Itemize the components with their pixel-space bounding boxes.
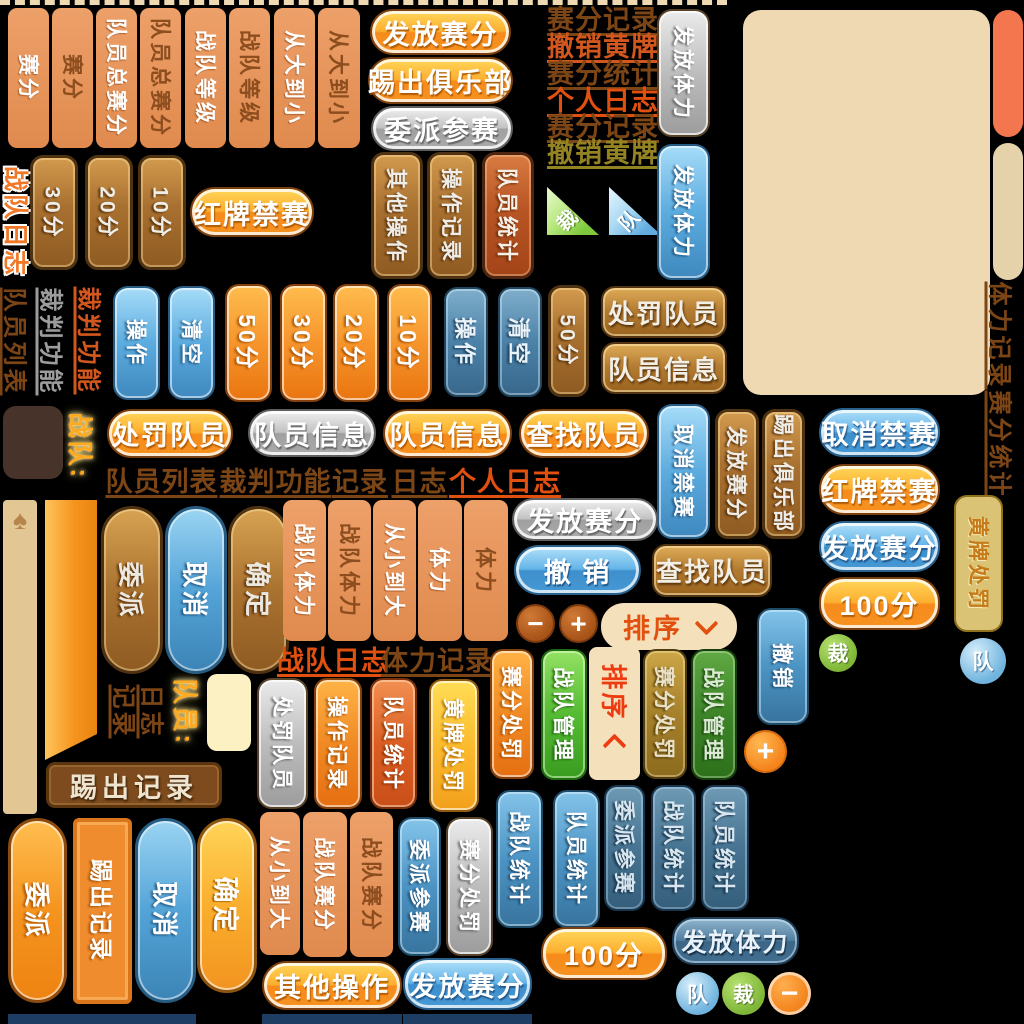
clear-button-steel[interactable]: 清空: [498, 287, 542, 397]
tab-team-stamina-brown-label: 战队体力: [335, 523, 365, 619]
confirm-button-pill-label: 确定: [240, 561, 277, 619]
team-log-link[interactable]: 战队日志: [282, 644, 384, 672]
10-points-button[interactable]: 10分: [138, 155, 186, 270]
score-penalty-button-gold[interactable]: 赛分处罚: [643, 649, 687, 779]
minus-button[interactable]: −: [516, 604, 555, 643]
action-button-blue[interactable]: 操作: [113, 286, 160, 400]
tab-team-stamina-white-label: 战队体力: [290, 523, 320, 619]
grant-stamina-button-blue[interactable]: 发放体力: [657, 144, 710, 280]
cancel-button-bottom[interactable]: 取消: [135, 818, 196, 1003]
team-log-label: 战队日志: [0, 158, 34, 286]
team-badge[interactable]: 队: [960, 638, 1006, 684]
tab-score-white-label: 赛分: [14, 54, 44, 102]
action-record-button[interactable]: 操作记录: [427, 152, 477, 279]
member-info-button-bronze-label: 队员信息: [608, 350, 720, 387]
referee-corner-flag[interactable]: 裁: [547, 187, 599, 235]
score-penalty-button[interactable]: 赛分处罚: [490, 649, 534, 779]
grant-score-button-blue[interactable]: 发放赛分: [819, 521, 940, 572]
sort-button-label: 排序: [623, 607, 683, 646]
kick-record-button-vertical-label: 踢出记录: [86, 859, 120, 963]
30-points-button[interactable]: 30分: [30, 155, 78, 270]
chevron-down-icon: [694, 611, 718, 635]
grant-score-button-gray[interactable]: 发放赛分: [512, 498, 658, 541]
punish-member-button[interactable]: 处罚队员: [107, 409, 233, 458]
10-points-button-orange-label: 10分: [393, 314, 427, 372]
referee-badge[interactable]: 裁: [819, 634, 857, 672]
log-link-label: 日志: [392, 460, 448, 499]
records-vlink[interactable]: 记录: [112, 680, 139, 742]
referee-functions-vlink-orange-label: 裁判功能: [74, 286, 109, 394]
member-info-button-gray[interactable]: 队员信息: [248, 409, 376, 457]
member-list-link-label: 队员列表: [106, 460, 218, 499]
30-points-button-label: 30分: [39, 186, 69, 239]
action-record-button-label: 操作记录: [437, 168, 467, 264]
clear-button-blue[interactable]: 清空: [168, 286, 215, 400]
50-points-button-orange[interactable]: 50分: [225, 284, 272, 402]
plus-button-label: +: [570, 608, 586, 640]
team-stats-button-vblue-label: 战队统计: [505, 811, 535, 907]
grant-stamina-button-gray-label: 发放体力: [669, 25, 699, 121]
cancel-ban-button-vertical-label: 取消禁赛: [669, 424, 699, 520]
team-stats-button-vdark-label: 战队统计: [659, 800, 689, 896]
20-points-button-orange-label: 20分: [339, 314, 373, 372]
plus-button-orange[interactable]: +: [744, 730, 787, 773]
find-member-button-label: 查找队员: [526, 414, 642, 453]
stamina-record-vlink-label: 体力记录: [985, 281, 1020, 389]
orange-ribbon: [45, 500, 97, 760]
team-management-button[interactable]: 战队管理: [541, 649, 587, 780]
tab-desc-order-white-label: 从大到小: [280, 30, 310, 126]
tan-strip: ♠: [3, 500, 37, 814]
grant-score-button-vertical-label: 发放赛分: [722, 426, 752, 522]
personal-log-link-2-label: 个人日志: [449, 460, 561, 499]
yellow-card-penalty-button-tan-label: 黄牌处罚: [964, 516, 994, 612]
sort-button-vertical-label: 排序: [596, 663, 633, 721]
member-stats-button-bronze-label: 队员统计: [493, 168, 523, 264]
referee-badge-2[interactable]: 裁: [722, 972, 765, 1015]
other-actions-button-2-label: 其他操作: [274, 966, 390, 1005]
tab-member-total-score-brown[interactable]: 队员总赛分: [140, 8, 181, 148]
punish-member-button-label: 处罚队员: [112, 414, 228, 453]
kick-record-button[interactable]: 踢出记录: [46, 762, 222, 808]
member-stats-button-vorange-label: 队员统计: [379, 696, 409, 792]
team-corner-flag-label: 队: [611, 202, 646, 237]
team-label: 战队:: [64, 406, 100, 486]
kick-club-button-label: 踢出俱乐部: [368, 61, 513, 100]
plus-button-orange-label: +: [757, 735, 775, 769]
referee-functions-vlink-gray[interactable]: 裁判功能: [35, 280, 71, 402]
kick-record-button-label: 踢出记录: [70, 766, 198, 805]
revoke-yellow-card-link-2-label: 撤销黄牌: [547, 131, 659, 170]
member-label-label: 队员:: [169, 678, 205, 745]
member-label: 队员:: [171, 675, 203, 749]
grant-stamina-button-blue-label: 发放体力: [669, 164, 699, 260]
assign-button-bottom[interactable]: 委派: [8, 818, 67, 1003]
tab-asc-order-white-2[interactable]: 从小到大: [260, 812, 300, 955]
team-log-link-label: 战队日志: [277, 639, 389, 678]
beige-side-pill: [993, 143, 1023, 280]
tab-desc-order-white[interactable]: 从大到小: [274, 8, 315, 148]
red-card-ban-button-2-label: 红牌禁赛: [822, 470, 938, 509]
member-info-button-gray-label: 队员信息: [254, 414, 370, 453]
revoke-yellow-card-link-2[interactable]: 撤销黄牌: [545, 137, 661, 163]
assign-match-button-label: 委派参赛: [384, 109, 500, 148]
cream-pill: [207, 674, 251, 751]
tab-desc-order-brown-label: 从大到小: [324, 30, 354, 126]
log-vlink-label: 日志: [136, 684, 171, 738]
referee-functions-link-label: 裁判功能: [220, 460, 332, 499]
red-card-ban-button-label: 红牌禁赛: [194, 193, 310, 232]
team-corner-flag[interactable]: 队: [609, 187, 661, 235]
tab-member-total-score-brown-label: 队员总赛分: [146, 18, 176, 138]
100-points-button-label: 100分: [839, 584, 919, 623]
referee-functions-vlink-gray-label: 裁判功能: [36, 287, 71, 395]
member-stats-button-vdark[interactable]: 队员统计: [701, 785, 749, 911]
cancel-ban-button-label: 取消禁赛: [822, 413, 938, 452]
red-card-ban-button-2[interactable]: 红牌禁赛: [819, 464, 940, 515]
action-button-blue-label: 操作: [122, 319, 152, 367]
sort-button-vertical[interactable]: 排序: [589, 647, 640, 780]
30-points-button-orange-label: 30分: [287, 314, 321, 372]
punish-member-button-bronze[interactable]: 处罚队员: [601, 286, 727, 338]
50-points-button-bronze-label: 50分: [554, 314, 584, 367]
other-actions-button[interactable]: 其他操作: [371, 152, 423, 279]
team-management-button-dark-label: 战队管理: [699, 667, 729, 763]
referee-badge-label: 裁: [828, 638, 849, 668]
cancel-button-pill-label: 取消: [178, 561, 215, 619]
personal-log-link-2[interactable]: 个人日志: [450, 465, 560, 493]
member-info-button-bronze[interactable]: 队员信息: [601, 342, 727, 394]
20-points-button-label: 20分: [94, 186, 124, 239]
member-stats-button-vdark-label: 队员统计: [710, 800, 740, 896]
tab-member-total-score-white-label: 队员总赛分: [102, 18, 132, 138]
stamina-record-vlink[interactable]: 体力记录: [983, 281, 1021, 389]
chevron-up-icon: [602, 733, 626, 757]
yellow-card-penalty-button[interactable]: 黄牌处罚: [429, 679, 479, 812]
grant-score-button-bottom[interactable]: 发放赛分: [403, 958, 532, 1010]
score-penalty-button-label: 赛分处罚: [497, 666, 527, 762]
team-badge-label: 队: [973, 646, 994, 676]
log-vlink[interactable]: 日志: [140, 680, 167, 742]
grant-score-button-blue-label: 发放赛分: [822, 527, 938, 566]
punish-member-button-vgray-label: 处罚队员: [268, 696, 298, 792]
referee-functions-link[interactable]: 裁判功能: [220, 465, 331, 493]
grant-score-button-vertical[interactable]: 发放赛分: [715, 409, 759, 539]
tab-team-stamina-brown[interactable]: 战队体力: [328, 500, 371, 641]
grant-score-button[interactable]: 发放赛分: [370, 9, 511, 55]
cancel-ban-button[interactable]: 取消禁赛: [819, 408, 940, 457]
yellow-card-penalty-button-label: 黄牌处罚: [439, 698, 469, 794]
score-penalty-button-gold-label: 赛分处罚: [650, 666, 680, 762]
grant-score-button-gray-label: 发放赛分: [527, 500, 643, 539]
plus-button[interactable]: +: [559, 604, 598, 643]
grant-stamina-button-gray[interactable]: 发放体力: [657, 9, 710, 137]
find-member-button[interactable]: 查找队员: [519, 409, 649, 458]
referee-functions-vlink-orange[interactable]: 裁判功能: [73, 278, 109, 402]
assign-button-pill-label: 委派: [114, 561, 151, 619]
tab-stamina-brown-label: 体力: [471, 547, 501, 595]
team-stats-button-vblue[interactable]: 战队统计: [496, 790, 543, 928]
other-actions-button-label: 其他操作: [382, 168, 412, 264]
member-info-button[interactable]: 队员信息: [383, 409, 512, 458]
dark-brown-tile: [3, 406, 63, 479]
assign-button-pill[interactable]: 委派: [101, 506, 163, 674]
referee-corner-flag-label: 裁: [549, 202, 584, 237]
assign-match-button-vblue-label: 委派参赛: [405, 839, 435, 935]
score-stats-vlink[interactable]: 赛分统计: [983, 389, 1021, 499]
assign-match-button[interactable]: 委派参赛: [371, 106, 513, 151]
member-list-link[interactable]: 队员列表: [106, 465, 217, 493]
tab-team-score-brown-label: 战队赛分: [357, 837, 387, 933]
tab-stamina-white-label: 体力: [425, 547, 455, 595]
undo-button-vertical[interactable]: 撤销: [757, 608, 809, 725]
member-stats-button-bronze[interactable]: 队员统计: [482, 152, 534, 279]
10-points-button-orange[interactable]: 10分: [387, 284, 432, 402]
score-penalty-button-vgray-label: 赛分处罚: [455, 839, 485, 935]
tab-score-brown-label: 赛分: [58, 54, 88, 102]
sort-button[interactable]: 排序: [601, 603, 737, 650]
100-points-button-2[interactable]: 100分: [541, 927, 667, 980]
records-link-label: 记录: [332, 460, 388, 499]
dashed-border: [0, 0, 727, 5]
kick-record-button-vertical[interactable]: 踢出记录: [73, 818, 132, 1004]
tab-asc-order-white[interactable]: 从小到大: [373, 500, 416, 641]
minus-button-label: −: [527, 608, 543, 640]
50-points-button-bronze[interactable]: 50分: [548, 285, 589, 397]
cancel-button-pill[interactable]: 取消: [165, 506, 227, 674]
kick-club-button[interactable]: 踢出俱乐部: [368, 57, 513, 104]
assign-match-button-vblue[interactable]: 委派参赛: [398, 817, 441, 956]
beige-panel: [743, 10, 990, 395]
cancel-button-bottom-label: 取消: [147, 881, 184, 939]
tab-team-level-white[interactable]: 战队等级: [185, 8, 226, 148]
grant-stamina-button-dark[interactable]: 发放体力: [672, 917, 799, 965]
punish-member-button-vgray[interactable]: 处罚队员: [257, 678, 308, 809]
tab-stamina-white[interactable]: 体力: [418, 500, 462, 641]
action-record-button-vorange-label: 操作记录: [323, 696, 353, 792]
tab-team-level-brown[interactable]: 战队等级: [229, 8, 270, 148]
tab-team-level-white-label: 战队等级: [191, 30, 221, 126]
tab-asc-order-white-label: 从小到大: [380, 523, 410, 619]
navy-fragment-2: [262, 1014, 402, 1024]
10-points-button-label: 10分: [147, 186, 177, 239]
50-points-button-orange-label: 50分: [232, 314, 266, 372]
team-badge-2[interactable]: 队: [676, 972, 719, 1015]
score-penalty-button-vgray[interactable]: 赛分处罚: [446, 817, 493, 956]
find-member-button-bronze-label: 查找队员: [656, 552, 768, 589]
score-stats-vlink-label: 赛分统计: [985, 390, 1020, 498]
member-list-vlink[interactable]: 队员列表: [0, 280, 33, 402]
100-points-button[interactable]: 100分: [819, 577, 940, 630]
undo-button-vertical-label: 撤销: [768, 643, 798, 691]
find-member-button-bronze[interactable]: 查找队员: [652, 544, 772, 597]
member-stats-button-vorange[interactable]: 队员统计: [370, 678, 417, 809]
red-card-ban-button[interactable]: 红牌禁赛: [190, 187, 314, 237]
minus-button-orange-label: −: [781, 977, 799, 1011]
assign-button-bottom-label: 委派: [19, 881, 56, 939]
action-button-steel-label: 操作: [450, 317, 482, 367]
grant-score-button-bottom-label: 发放赛分: [410, 965, 526, 1004]
undo-button[interactable]: 撤 销: [514, 545, 641, 595]
tab-team-level-brown-label: 战队等级: [235, 30, 265, 126]
member-info-button-label: 队员信息: [390, 414, 506, 453]
navy-fragment-3: [403, 1014, 532, 1024]
20-points-button-orange[interactable]: 20分: [333, 284, 379, 402]
sprite-sheet-stage: 赛分赛分队员总赛分队员总赛分战队等级战队等级从大到小从大到小发放赛分踢出俱乐部委…: [0, 0, 1024, 1024]
clear-button-blue-label: 清空: [177, 319, 207, 367]
grant-stamina-button-dark-label: 发放体力: [681, 923, 789, 959]
punish-member-button-bronze-label: 处罚队员: [608, 294, 720, 331]
30-points-button-orange[interactable]: 30分: [280, 284, 327, 402]
tab-desc-order-brown[interactable]: 从大到小: [318, 8, 360, 148]
member-list-vlink-label: 队员列表: [0, 287, 34, 395]
assign-match-button-vdark[interactable]: 委派参赛: [604, 785, 645, 911]
stamina-record-link[interactable]: 体力记录: [386, 644, 488, 672]
tab-score-brown[interactable]: 赛分: [52, 8, 93, 148]
team-management-button-label: 战队管理: [549, 667, 579, 763]
tab-team-score-white[interactable]: 战队赛分: [303, 812, 347, 957]
grant-score-button-label: 发放赛分: [383, 13, 499, 52]
minus-button-orange[interactable]: −: [768, 972, 811, 1015]
action-record-button-vorange[interactable]: 操作记录: [314, 678, 362, 809]
tab-asc-order-white-2-label: 从小到大: [265, 836, 295, 932]
log-link[interactable]: 日志: [392, 465, 447, 493]
cancel-ban-button-vertical[interactable]: 取消禁赛: [657, 404, 710, 539]
team-label-label: 战队:: [64, 412, 100, 479]
kick-club-button-vertical-label: 踢出俱乐部: [769, 414, 799, 534]
action-button-steel[interactable]: 操作: [444, 287, 488, 397]
20-points-button[interactable]: 20分: [85, 155, 133, 270]
tab-member-total-score-white[interactable]: 队员总赛分: [96, 8, 137, 148]
tab-team-score-brown[interactable]: 战队赛分: [350, 812, 393, 957]
other-actions-button-2[interactable]: 其他操作: [262, 961, 402, 1010]
team-stats-button-vdark[interactable]: 战队统计: [651, 785, 696, 911]
team-management-button-dark[interactable]: 战队管理: [691, 649, 737, 780]
assign-match-button-vdark-label: 委派参赛: [610, 800, 640, 896]
referee-badge-2-label: 裁: [733, 979, 754, 1009]
kick-club-button-vertical[interactable]: 踢出俱乐部: [762, 409, 805, 539]
member-stats-button-vblue-label: 队员统计: [562, 811, 592, 907]
clear-button-steel-label: 清空: [504, 317, 536, 367]
tab-team-score-white-label: 战队赛分: [310, 837, 340, 933]
tab-score-white[interactable]: 赛分: [8, 8, 49, 148]
100-points-button-2-label: 100分: [564, 934, 644, 973]
salmon-pill: [993, 10, 1023, 137]
tab-stamina-brown[interactable]: 体力: [464, 500, 508, 641]
undo-button-label: 撤 销: [544, 551, 612, 590]
yellow-card-penalty-button-tan[interactable]: 黄牌处罚: [954, 495, 1003, 632]
confirm-button-bottom[interactable]: 确定: [197, 818, 257, 993]
tan-strip-label: ♠: [13, 505, 27, 536]
confirm-button-bottom-label: 确定: [209, 876, 246, 934]
records-link[interactable]: 记录: [333, 465, 387, 493]
navy-fragment-1: [8, 1014, 196, 1024]
stamina-record-link-label: 体力记录: [381, 639, 493, 678]
member-stats-button-vblue[interactable]: 队员统计: [553, 790, 600, 928]
team-badge-2-label: 队: [687, 979, 708, 1009]
tab-team-stamina-white[interactable]: 战队体力: [283, 500, 326, 641]
team-log-label-label: 战队日志: [0, 166, 35, 278]
